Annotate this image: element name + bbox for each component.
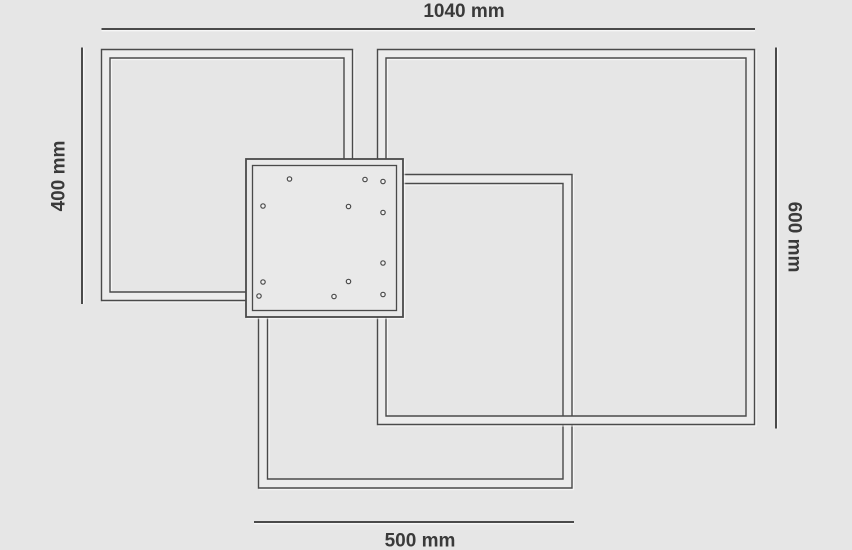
mounting-plate [246,159,403,317]
dimension-diagram: 1040 mm 400 mm 600 mm 500 mm [0,0,852,550]
dimension-label-left: 400 mm [49,141,70,212]
dimension-diagram-page: 1040 mm 400 mm 600 mm 500 mm [0,0,852,550]
screw-hole [261,204,265,208]
dimension-label-top: 1040 mm [423,1,504,22]
screw-hole [346,279,350,283]
screw-hole [346,204,350,208]
screw-hole [332,294,336,298]
screw-hole [363,177,367,181]
screw-hole [381,261,385,265]
dimension-label-bottom: 500 mm [385,531,456,550]
screw-hole [287,177,291,181]
screw-hole [381,179,385,183]
screw-hole [381,292,385,296]
dimension-label-right: 600 mm [784,202,805,273]
diagram-shapes [82,29,778,524]
screw-hole [261,280,265,284]
screw-hole [257,294,261,298]
screw-hole [381,210,385,214]
